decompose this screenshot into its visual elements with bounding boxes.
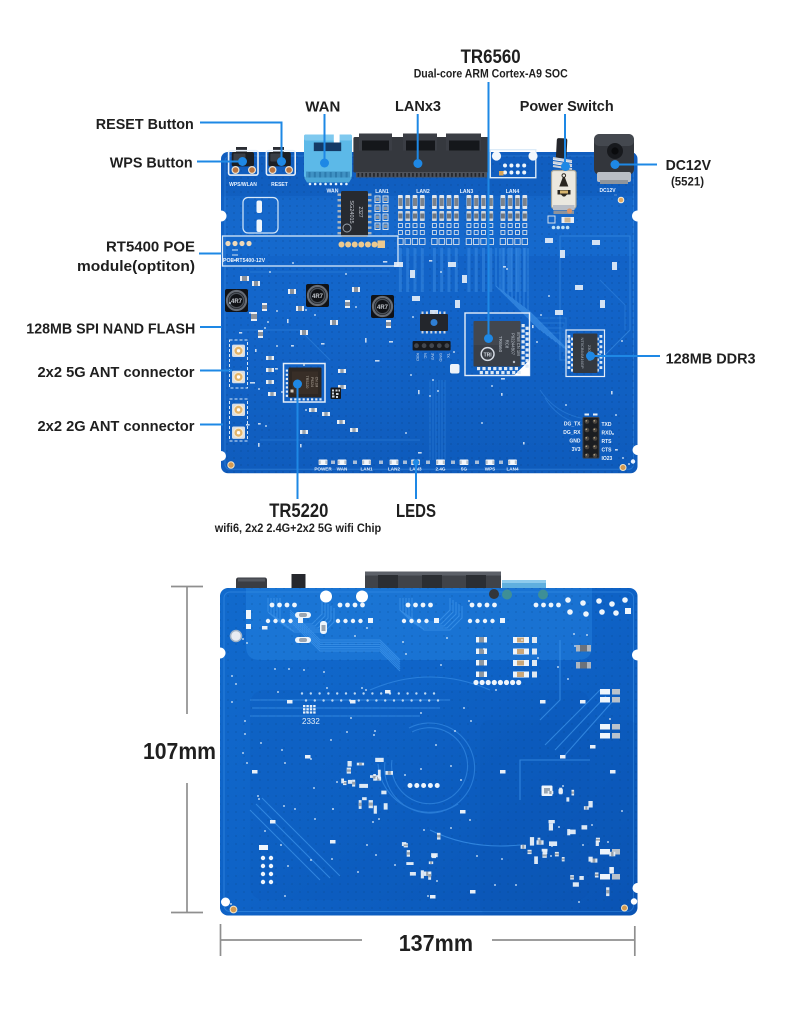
svg-text:CTS: CTS [602, 448, 613, 454]
svg-text:LANx3: LANx3 [395, 98, 441, 115]
svg-text:LAN4: LAN4 [507, 467, 519, 472]
svg-text:WAN: WAN [326, 189, 338, 195]
svg-text::::: ::: [614, 193, 617, 197]
svg-text:POWER: POWER [314, 467, 332, 472]
svg-text:8758 CN 1M: 8758 CN 1M [516, 332, 521, 356]
svg-text:RESET: RESET [271, 182, 288, 188]
svg-text:128MB SPI NAND FLASH: 128MB SPI NAND FLASH [26, 321, 195, 338]
svg-text:NT5CB64M16GP: NT5CB64M16GP [580, 337, 585, 368]
svg-text:IO23: IO23 [602, 456, 613, 462]
svg-text:P92244B07: P92244B07 [511, 333, 516, 356]
svg-text:CN 1M: CN 1M [315, 377, 319, 388]
svg-text:LEDS: LEDS [396, 501, 436, 521]
svg-text:2327: 2327 [357, 206, 363, 217]
svg-text:LAN2: LAN2 [388, 467, 400, 472]
svg-text:4R7: 4R7 [231, 299, 243, 305]
svg-text:SG24015: SG24015 [348, 200, 354, 223]
svg-text:2x2 2G ANT connector: 2x2 2G ANT connector [38, 418, 195, 435]
svg-text:DC12V: DC12V [666, 157, 711, 174]
svg-text:RXD: RXD [416, 353, 420, 361]
svg-text:Dual-core ARM Cortex-A9 SOC: Dual-core ARM Cortex-A9 SOC [414, 67, 568, 81]
svg-text:WPS/WLAN: WPS/WLAN [229, 182, 257, 188]
svg-text:RXD: RXD [602, 431, 613, 437]
svg-text:WPS: WPS [485, 467, 495, 472]
svg-text:GND: GND [569, 439, 581, 445]
svg-text:TR6560: TR6560 [461, 46, 521, 68]
svg-text:137mm: 137mm [399, 930, 473, 956]
svg-text:NC: NC [423, 353, 427, 359]
svg-text:LAN4: LAN4 [506, 189, 520, 195]
svg-text:TR6560: TR6560 [498, 336, 503, 353]
svg-text:RESET Button: RESET Button [96, 116, 194, 133]
svg-text:DG_TX: DG_TX [564, 422, 581, 428]
svg-text:GND: GND [438, 353, 442, 362]
svg-text:LAN2: LAN2 [416, 189, 430, 195]
svg-text:TX: TX [446, 353, 450, 358]
svg-text:WAN: WAN [305, 99, 340, 116]
svg-text:WPS Button: WPS Button [110, 155, 193, 172]
svg-text:128MB DDR3: 128MB DDR3 [666, 351, 756, 368]
svg-text:TXD: TXD [602, 422, 612, 428]
svg-text:2x2 5G ANT connector: 2x2 5G ANT connector [38, 364, 195, 381]
svg-text:RTS: RTS [602, 439, 613, 445]
svg-text:3V3: 3V3 [572, 447, 581, 453]
svg-text:WAN: WAN [337, 467, 348, 472]
svg-text:3V3: 3V3 [431, 353, 435, 360]
svg-text:2332: 2332 [302, 717, 320, 726]
svg-text:DG_RX: DG_RX [563, 430, 581, 436]
svg-text:LAN1: LAN1 [361, 467, 373, 472]
svg-text:LAN1: LAN1 [375, 189, 389, 195]
svg-text:TR5220: TR5220 [269, 500, 328, 522]
svg-text:107mm: 107mm [143, 738, 216, 764]
svg-text:2.4G: 2.4G [436, 467, 446, 472]
svg-text:TR5220: TR5220 [305, 376, 309, 389]
svg-text:4R7: 4R7 [377, 305, 389, 311]
svg-text:P9224: P9224 [310, 377, 314, 387]
svg-text:Power Switch: Power Switch [520, 98, 614, 115]
svg-text:RC8: RC8 [505, 340, 510, 349]
svg-text:module(optiton): module(optiton) [77, 258, 195, 275]
svg-text:(5521): (5521) [671, 175, 704, 189]
svg-text:TRI: TRI [484, 352, 493, 358]
svg-text:5G: 5G [461, 467, 468, 472]
svg-text:RT5400 POE: RT5400 POE [106, 239, 195, 256]
svg-text:POE-RT5400-12V: POE-RT5400-12V [223, 258, 266, 264]
svg-text:LAN3: LAN3 [460, 189, 474, 195]
svg-text:wifi6, 2x2 2.4G+2x2 5G wifi Ch: wifi6, 2x2 2.4G+2x2 5G wifi Chip [214, 521, 381, 535]
svg-text:4R7: 4R7 [312, 294, 324, 300]
